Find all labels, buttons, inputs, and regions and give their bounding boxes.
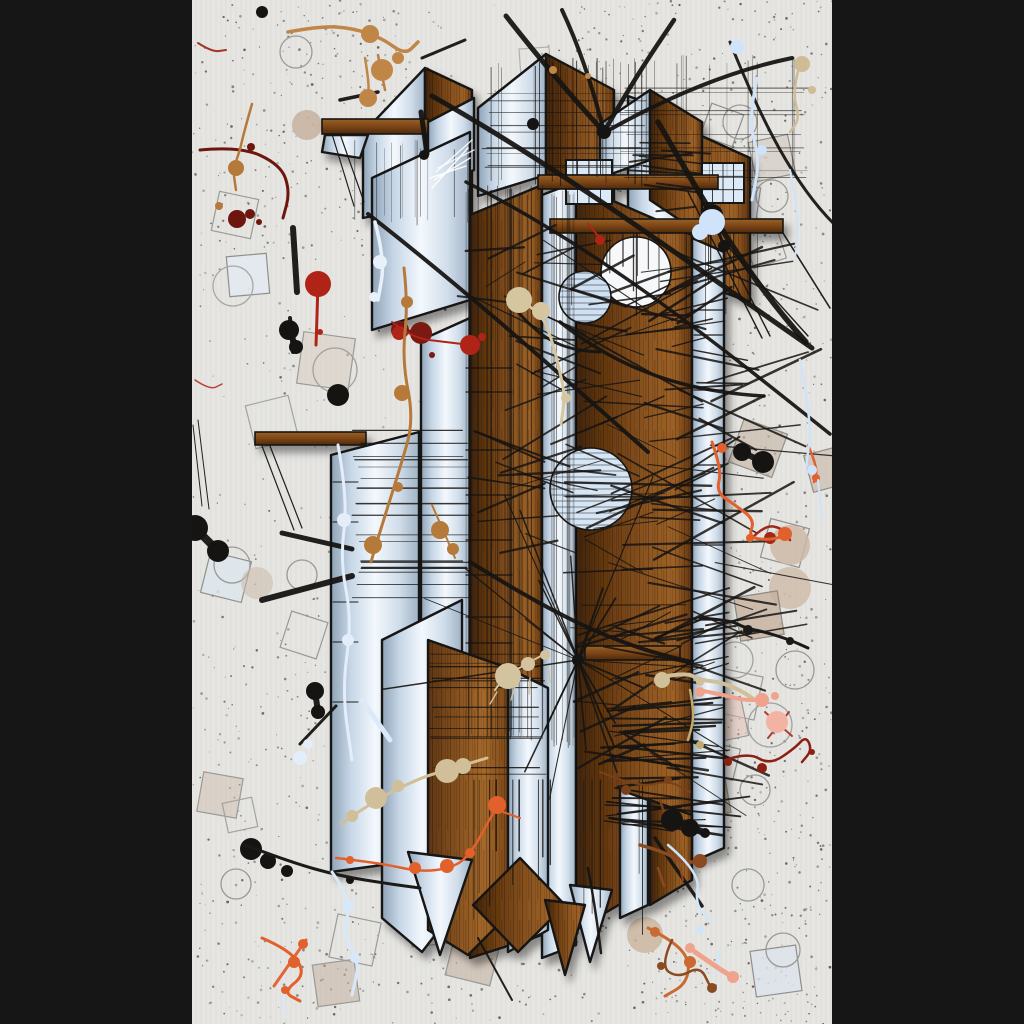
- splatter-blob: [786, 637, 794, 645]
- artwork-stage: [0, 0, 1024, 1024]
- splatter-blob: [337, 513, 351, 527]
- ink-blob: [419, 150, 429, 160]
- ink-blob: [207, 540, 229, 562]
- splatter-blob: [342, 900, 354, 912]
- splatter-blob: [409, 862, 421, 874]
- splatter-blob: [465, 848, 475, 858]
- splatter-blob: [281, 986, 289, 994]
- splatter-blob: [431, 521, 449, 539]
- splatter-blob: [228, 160, 244, 176]
- splatter-blob: [447, 543, 459, 555]
- splatter-blob: [373, 255, 387, 269]
- ink-blob: [306, 682, 324, 700]
- splatter-blob: [346, 810, 358, 822]
- splatter-blob: [809, 749, 815, 755]
- splatter-blob: [317, 329, 323, 335]
- splatter-blob: [350, 953, 360, 963]
- ink-blob: [256, 6, 268, 18]
- splatter-blob: [778, 527, 792, 541]
- splatter-blob: [364, 536, 382, 554]
- splatter-blob: [506, 287, 532, 313]
- splatter-blob: [724, 758, 732, 766]
- bg-circle: [292, 110, 322, 140]
- ink-blob: [289, 340, 303, 354]
- bg-square: [312, 959, 359, 1006]
- ink-stroke: [529, 678, 530, 694]
- splatter-blob: [654, 672, 670, 688]
- splatter-blob: [228, 210, 246, 228]
- bg-square: [750, 945, 802, 997]
- splatter-blob: [549, 66, 557, 74]
- splatter-blob: [540, 650, 550, 660]
- splatter-blob: [621, 785, 631, 795]
- splatter-blob: [807, 465, 817, 475]
- splatter-blob: [359, 89, 377, 107]
- splatter-blob: [757, 145, 767, 155]
- splatter-blob: [495, 663, 521, 689]
- splatter-blob: [595, 235, 605, 245]
- splatter-blob: [305, 271, 331, 297]
- ink-blob: [681, 819, 699, 837]
- splatter-blob: [707, 983, 717, 993]
- splatter-blob: [393, 482, 403, 492]
- splatter-blob: [303, 739, 313, 749]
- splatter-blob: [743, 625, 753, 635]
- splatter-blob: [766, 711, 788, 733]
- splatter-blob: [794, 56, 810, 72]
- bg-circle: [241, 567, 273, 599]
- splatter-blob: [346, 856, 354, 864]
- splatter-blob: [361, 25, 379, 43]
- ink-stroke: [293, 228, 297, 292]
- ink-blob: [700, 828, 710, 838]
- letterbox-right: [832, 0, 1024, 1024]
- splatter-blob: [808, 86, 816, 94]
- splatter-blob: [657, 962, 665, 970]
- splatter-blob: [394, 385, 410, 401]
- splatter-blob: [664, 776, 672, 784]
- splatter-blob: [561, 393, 571, 403]
- beam: [550, 219, 783, 233]
- ink-blob: [311, 705, 325, 719]
- splatter-blob: [521, 657, 535, 671]
- splatter-blob: [293, 751, 307, 765]
- splatter-blob: [392, 52, 404, 64]
- beam: [255, 432, 366, 445]
- splatter-blob: [429, 352, 435, 358]
- splatter-blob: [650, 927, 660, 937]
- abstract-artwork: [0, 0, 1024, 1024]
- ink-blob: [279, 320, 299, 340]
- splatter-blob: [757, 763, 767, 773]
- splatter-blob: [727, 971, 739, 983]
- splatter-blob: [455, 758, 471, 774]
- splatter-blob: [369, 292, 379, 302]
- splatter-blob: [730, 40, 744, 54]
- bg-square: [226, 253, 269, 296]
- splatter-blob: [696, 741, 704, 749]
- ink-blob: [572, 654, 584, 666]
- splatter-blob: [532, 302, 550, 320]
- splatter-blob: [755, 693, 769, 707]
- splatter-blob: [696, 678, 704, 686]
- splatter-blob: [371, 59, 393, 81]
- ink-blob: [718, 240, 730, 252]
- ink-blob: [281, 865, 293, 877]
- splatter-blob: [478, 333, 486, 341]
- ink-blob: [733, 443, 751, 461]
- beam: [322, 119, 428, 134]
- ink-blob: [527, 118, 539, 130]
- bg-square: [297, 332, 356, 391]
- splatter-blob: [746, 534, 754, 542]
- splatter-blob: [440, 859, 454, 873]
- structure-panel-face: [620, 790, 648, 918]
- splatter-blob: [215, 202, 223, 210]
- splatter-blob: [245, 209, 255, 219]
- splatter-blob: [460, 335, 480, 355]
- splatter-blob: [771, 692, 779, 700]
- splatter-blob: [288, 956, 300, 968]
- letterbox-left: [0, 0, 192, 1024]
- splatter-blob: [392, 780, 404, 792]
- bg-square: [197, 772, 243, 818]
- splatter-blob: [435, 759, 459, 783]
- splatter-blob: [717, 443, 727, 453]
- ink-blob: [327, 384, 349, 406]
- splatter-blob: [298, 939, 308, 949]
- splatter-blob: [685, 943, 695, 953]
- splatter-blob: [256, 219, 262, 225]
- splatter-blob: [247, 143, 255, 151]
- splatter-blob: [693, 854, 707, 868]
- splatter-blob: [365, 787, 387, 809]
- splatter-blob: [692, 224, 708, 240]
- splatter-blob: [585, 73, 591, 79]
- splatter-blob: [401, 296, 413, 308]
- splatter-blob: [342, 634, 354, 646]
- splatter-blob: [696, 926, 704, 934]
- splatter-blob: [695, 687, 705, 697]
- ink-blob: [661, 809, 683, 831]
- splatter-blob: [684, 956, 696, 968]
- ink-blob: [752, 451, 774, 473]
- ink-blob: [597, 125, 611, 139]
